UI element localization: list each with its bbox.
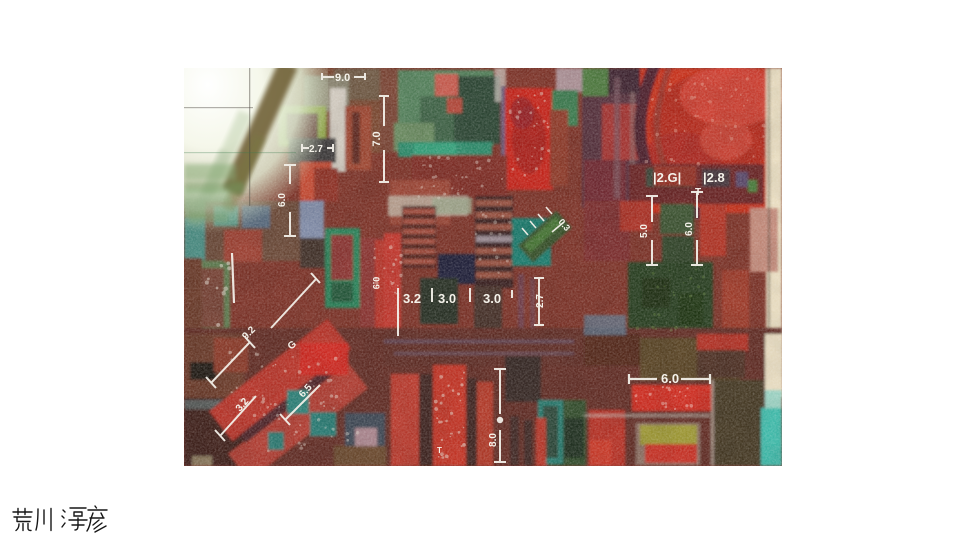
svg-text:T: T [437, 446, 442, 455]
svg-text:5.0: 5.0 [639, 224, 650, 238]
svg-text:0.9: 0.9 [371, 277, 381, 290]
svg-text:6.0: 6.0 [661, 371, 679, 386]
svg-text:3.0: 3.0 [483, 291, 501, 306]
svg-text:|2.G|: |2.G| [653, 170, 681, 185]
svg-text:6.0: 6.0 [684, 222, 695, 236]
svg-text:7.0: 7.0 [371, 131, 383, 146]
svg-text:9.0: 9.0 [335, 72, 350, 84]
svg-text:|2.8: |2.8 [703, 170, 725, 185]
svg-text:3.2: 3.2 [403, 291, 421, 306]
svg-text:2.7: 2.7 [535, 294, 546, 308]
svg-text:T: T [695, 187, 701, 198]
svg-text:6.0: 6.0 [277, 193, 288, 207]
svg-text:2.7: 2.7 [309, 144, 323, 155]
svg-text:8.0: 8.0 [488, 433, 499, 447]
svg-text:3.0: 3.0 [438, 291, 456, 306]
